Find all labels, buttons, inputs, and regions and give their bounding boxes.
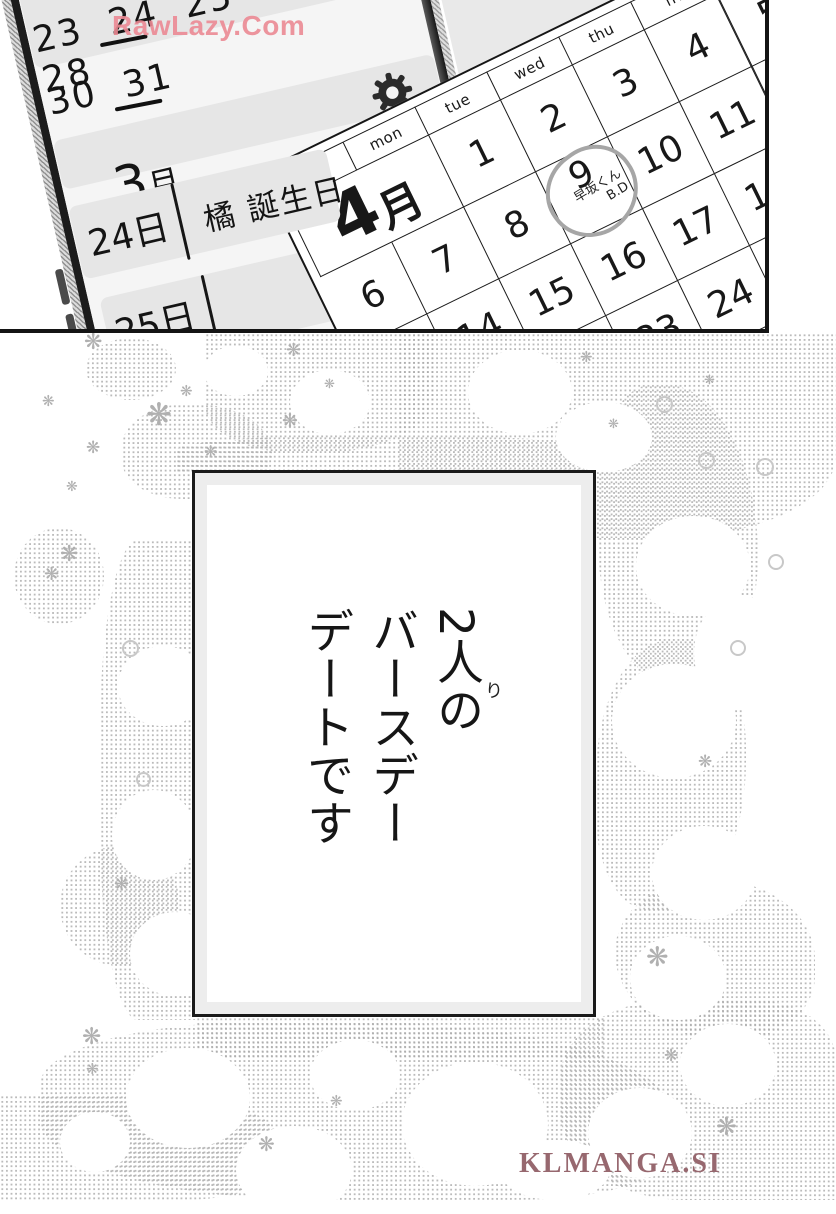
tone-hole [630,936,726,1020]
tone-hole [112,790,196,880]
sparkle-icon: ❋ [60,544,78,566]
ring-sparkle-icon [656,396,673,413]
caption-furigana: り [485,677,503,703]
sparkle-icon: ❋ [330,1094,343,1109]
sparkle-icon: ❋ [86,440,100,457]
sparkle-icon: ❋ [180,384,193,399]
sparkle-icon: ❋ [716,1114,737,1139]
sparkle-icon: ❋ [698,754,712,771]
ring-sparkle-icon [730,640,746,656]
caption-panel: 2人の バースデー デートです り [192,470,596,1017]
screentone-blob [176,436,596,472]
sparkle-icon: ❋ [646,944,669,971]
manga-panel-calendar: 23 24 25 26 27 28 30 31 3月 25日 sun mon t… [0,0,769,333]
sparkle-icon: ❋ [286,342,301,360]
tone-hole [680,1024,776,1106]
sparkle-icon: ❋ [86,1062,99,1077]
sparkle-icon: ❋ [580,350,593,365]
sparkle-icon: ❋ [608,418,619,431]
sparkle-icon: ❋ [258,1134,275,1154]
tone-hole [652,826,756,920]
sparkle-icon: ❋ [282,412,298,431]
screentone-blob [196,1017,604,1059]
sparkle-icon: ❋ [66,480,78,494]
ring-sparkle-icon [768,554,784,570]
ring-sparkle-icon [122,640,139,657]
tone-hole [236,1126,352,1214]
sparkle-icon: ❋ [664,1048,678,1065]
watermark-bottom: KLMANGA.SI [519,1148,722,1180]
ring-sparkle-icon [756,458,774,476]
sparkle-icon: ❋ [42,394,55,409]
sparkle-icon: ❋ [84,332,102,354]
caption-panel-inner: 2人の バースデー デートです り [207,485,581,1002]
tone-hole [468,350,572,434]
caption-text: 2人の バースデー デートです [292,607,487,847]
sparkle-icon: ❋ [44,566,59,584]
tone-hole [310,1040,400,1110]
ring-sparkle-icon [698,452,715,469]
tone-hole [60,1112,130,1172]
sparkle-icon: ❋ [146,400,172,431]
tone-hole [126,1048,250,1148]
sparkle-icon: ❋ [82,1026,101,1049]
tone-hole [204,346,268,396]
tone-hole [556,402,652,472]
sparkle-icon: ❋ [324,378,335,391]
ring-sparkle-icon [136,772,151,787]
sparkle-icon: ❋ [704,374,715,387]
sparkle-icon: ❋ [114,876,129,894]
watermark-top: RawLazy.Com [112,10,305,42]
sparkle-icon: ❋ [204,444,217,460]
